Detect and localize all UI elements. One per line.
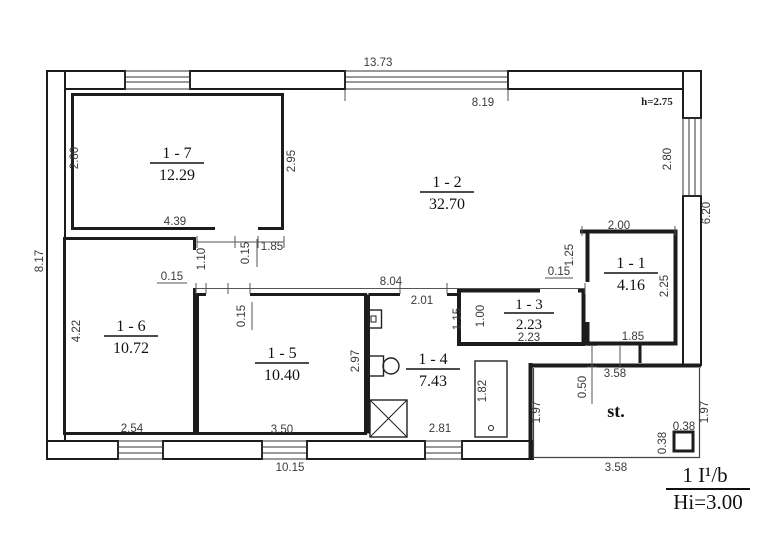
room-1-3-label: 1 - 3 <box>515 297 543 313</box>
dim-r6-left: 4.22 <box>71 320 83 342</box>
dim-porch-bottom: 3.58 <box>605 462 627 474</box>
bathtub-drain <box>489 426 494 431</box>
dim-r1-bottom: 1.85 <box>622 331 644 343</box>
dim-r3-side-b: 1.00 <box>475 305 487 327</box>
dim-r5-bottom: 3.50 <box>271 424 293 436</box>
dim-r5-right: 2.97 <box>350 350 362 372</box>
room-1-4-label: 1 - 4 <box>418 351 447 368</box>
dim-tub: 1.82 <box>477 380 489 402</box>
room-1-5-label: 1 - 5 <box>267 345 296 362</box>
stairs-label: st. <box>607 401 625 421</box>
outer-walls <box>47 71 701 459</box>
room-1-5-walls <box>198 295 366 434</box>
dim-wall-r6: 0.15 <box>161 271 183 283</box>
window-top-right <box>345 71 508 89</box>
room-1-2-area: 32.70 <box>429 196 465 213</box>
dim-r7-right: 2.95 <box>286 150 298 172</box>
wall-bottom-d <box>462 441 533 459</box>
room-1-6-label: 1 - 6 <box>116 318 145 335</box>
room-1-3-area: 2.23 <box>516 317 542 333</box>
dim-r3-side-a: 1.15 <box>452 308 464 330</box>
dim-r6-bottom: 2.54 <box>121 423 144 435</box>
dim-r1-right: 2.25 <box>659 275 671 297</box>
dim-r4-door: 2.01 <box>411 295 433 307</box>
floor-plan-page: 1 - 7 12.29 1 - 2 32.70 1 - 6 10.72 1 - … <box>0 0 758 549</box>
dimension-lines <box>157 90 675 404</box>
wall-bottom-a <box>47 441 118 459</box>
dim-side-right: 6.20 <box>701 202 713 224</box>
dim-r7-left: 2.80 <box>69 147 81 169</box>
dim-r1-top: 2.00 <box>608 220 630 232</box>
dim-pillar-w: 0.38 <box>673 421 695 433</box>
wall-top-b <box>190 71 345 89</box>
dim-overall-top: 13.73 <box>364 57 393 69</box>
dim-wall-corridor: 0.15 <box>240 242 252 264</box>
sink-detail <box>371 316 376 322</box>
dim-side-left: 8.17 <box>34 250 46 272</box>
wall-bottom-c <box>307 441 425 459</box>
toilet-bowl <box>383 358 399 374</box>
wall-right-b <box>683 196 701 365</box>
dim-porch-top: 3.58 <box>604 368 626 380</box>
dim-corridor: 1.10 <box>196 248 208 270</box>
window-bottom-mid <box>262 441 307 459</box>
room-labels: 1 - 7 12.29 1 - 2 32.70 1 - 6 10.72 1 - … <box>104 145 658 390</box>
window-right <box>683 118 701 196</box>
dim-pillar-h: 0.38 <box>657 432 669 454</box>
dim-hall-width: 8.04 <box>380 276 403 288</box>
room-1-7-area: 12.29 <box>159 167 195 184</box>
dim-porch-right: 1.97 <box>699 401 711 423</box>
porch-pillar <box>674 432 693 451</box>
dim-r7-door: 1.85 <box>261 241 283 253</box>
window-bottom-left <box>118 441 163 459</box>
dim-wall-r5: 0.15 <box>236 305 248 327</box>
plan-code: 1 I¹/b <box>682 463 727 487</box>
dim-porch-left: 1.97 <box>531 401 543 423</box>
room-1-2-label: 1 - 2 <box>432 174 461 191</box>
dim-overall-bottom: 10.15 <box>276 462 305 474</box>
dim-porch-step: 0.50 <box>577 376 589 398</box>
dim-r4-bottom: 2.81 <box>429 423 451 435</box>
floor-height: Hi=3.00 <box>673 490 743 514</box>
dim-r3-bottom: 2.23 <box>518 332 540 344</box>
wall-right-a <box>683 71 701 118</box>
sink <box>369 310 382 328</box>
room-1-1-label: 1 - 1 <box>616 255 645 272</box>
dim-height-note: h=2.75 <box>641 96 673 108</box>
window-top-left <box>125 71 190 89</box>
dim-r7-bottom: 4.39 <box>164 216 186 228</box>
toilet-tank <box>369 356 384 376</box>
dim-window-top: 8.19 <box>472 97 494 109</box>
wall-bottom-b <box>163 441 262 459</box>
window-bottom-right <box>425 441 462 459</box>
room-1-5-area: 10.40 <box>264 367 300 384</box>
wall-top-c <box>508 71 701 89</box>
room-1-6-area: 10.72 <box>113 340 149 357</box>
room-1-1-area: 4.16 <box>617 277 645 294</box>
room-1-4-area: 7.43 <box>419 373 447 390</box>
dim-wall-r3: 0.15 <box>548 266 570 278</box>
shower-cross <box>370 400 407 437</box>
dim-window-right: 2.80 <box>662 148 674 170</box>
room-1-7-label: 1 - 7 <box>162 145 191 162</box>
floor-plan-drawing: 1 - 7 12.29 1 - 2 32.70 1 - 6 10.72 1 - … <box>0 0 758 549</box>
dim-r1-left: 1.25 <box>564 244 576 266</box>
wall-left <box>47 71 65 459</box>
